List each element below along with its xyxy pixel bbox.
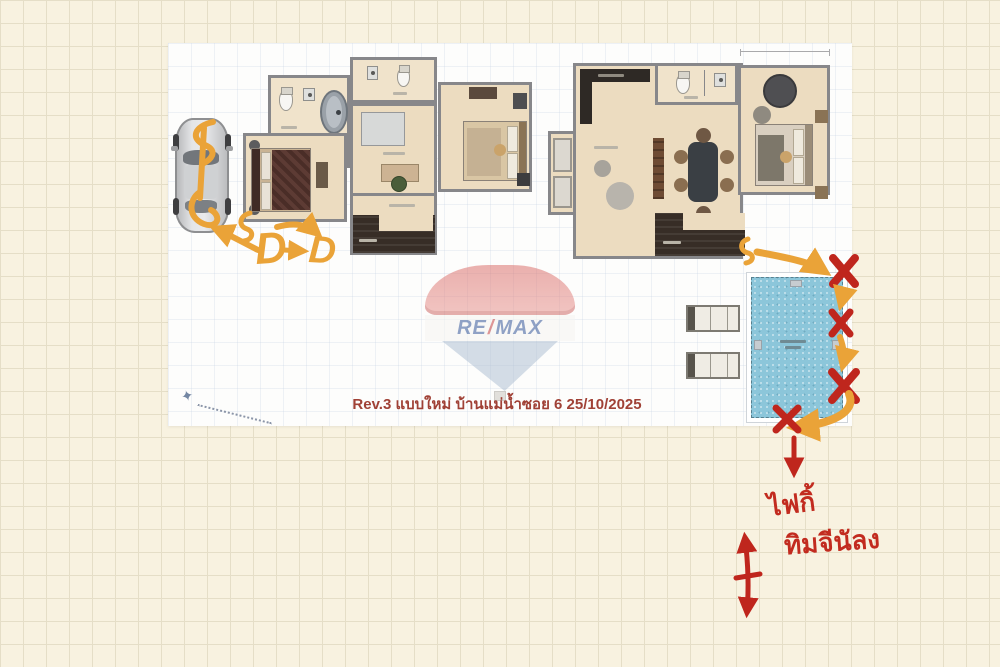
room-label-smudge bbox=[383, 152, 405, 155]
remax-logo-text: RE/MAX bbox=[425, 315, 575, 341]
sun-lounger-icon bbox=[686, 352, 740, 379]
room-label-smudge bbox=[393, 92, 407, 95]
pool-step-icon bbox=[790, 280, 802, 287]
toilet-icon bbox=[279, 90, 293, 111]
dining-chair-icon bbox=[720, 178, 734, 192]
dashed-path-line bbox=[198, 404, 272, 424]
right-plan-deck bbox=[655, 213, 745, 256]
car-roof bbox=[184, 165, 218, 199]
deck-label-smudge bbox=[663, 241, 681, 244]
toilet-icon bbox=[397, 68, 410, 87]
kitchen-counter-icon bbox=[580, 82, 592, 124]
balloon-cone bbox=[442, 341, 558, 391]
rug-icon bbox=[753, 106, 771, 124]
red-tick bbox=[736, 574, 760, 578]
remax-balloon-watermark: RE/MAX bbox=[424, 265, 576, 397]
dimension-line bbox=[740, 51, 830, 52]
north-star-icon: ✦ bbox=[179, 386, 196, 407]
divider-shelf-icon bbox=[653, 138, 664, 199]
sofa-icon bbox=[553, 176, 572, 208]
pool-ladder-icon bbox=[832, 340, 840, 350]
left-plan-deck bbox=[353, 215, 435, 253]
left-plan-bathroom-2 bbox=[350, 57, 437, 103]
nightstand-icon bbox=[815, 110, 828, 123]
counter-label-smudge bbox=[598, 74, 624, 77]
bed-icon bbox=[463, 121, 527, 181]
shower-icon bbox=[303, 88, 315, 101]
dining-chair-icon bbox=[674, 178, 688, 192]
right-plan-bedroom bbox=[738, 65, 830, 195]
floorplan-image: RE/MAX Rev.3 แบบใหม่ บ้านแม่น้ำซอย 6 25/… bbox=[168, 43, 852, 426]
annotated-floorplan-note: RE/MAX Rev.3 แบบใหม่ บ้านแม่น้ำซอย 6 25/… bbox=[0, 0, 1000, 667]
red-double-arrow bbox=[745, 538, 748, 612]
room-label-smudge bbox=[389, 204, 415, 207]
handwritten-note-line1: ไฟกิ้ bbox=[766, 481, 818, 527]
rear-window bbox=[185, 200, 217, 213]
bed-icon bbox=[755, 124, 813, 186]
right-plan-sofa-nook bbox=[548, 131, 576, 215]
room-label-smudge bbox=[594, 146, 618, 149]
rug-icon bbox=[606, 182, 634, 210]
sofa-icon bbox=[553, 138, 572, 172]
car-top-view bbox=[175, 118, 229, 233]
dining-chair-icon bbox=[674, 150, 688, 164]
windshield bbox=[183, 150, 219, 165]
dresser-icon bbox=[316, 162, 328, 188]
bathtub-icon bbox=[320, 90, 348, 134]
right-plan-bathroom bbox=[655, 63, 738, 105]
shower-icon bbox=[367, 66, 378, 80]
round-chair-icon bbox=[763, 74, 797, 108]
tv-cabinet-icon bbox=[513, 93, 527, 109]
left-plan-master-bedroom bbox=[243, 133, 347, 222]
toilet-icon bbox=[676, 74, 690, 94]
room-label-smudge bbox=[281, 126, 297, 129]
dining-chair-icon bbox=[696, 128, 711, 143]
deck-label-smudge bbox=[359, 239, 377, 242]
partition-line bbox=[704, 70, 705, 96]
pool-label-smudge bbox=[785, 346, 801, 349]
swimming-pool bbox=[746, 272, 848, 423]
wardrobe-icon bbox=[469, 87, 497, 99]
bed-icon bbox=[251, 148, 311, 212]
dining-table-icon bbox=[688, 142, 718, 202]
nightstand-icon bbox=[517, 173, 530, 186]
nightstand-icon bbox=[815, 186, 828, 199]
pool-label-smudge bbox=[780, 340, 806, 343]
left-plan-office-room bbox=[350, 103, 437, 197]
dining-chair-icon bbox=[720, 150, 734, 164]
pouf-icon bbox=[594, 160, 611, 177]
pool-ladder-icon bbox=[754, 340, 762, 350]
chair-icon bbox=[391, 176, 407, 192]
daybed-icon bbox=[361, 112, 405, 146]
handwritten-note-line2: ทิมจีนัลง bbox=[783, 519, 882, 567]
pool-water bbox=[751, 277, 843, 418]
left-plan-bedroom-2 bbox=[438, 82, 532, 192]
shower-icon bbox=[714, 73, 726, 87]
plan-caption: Rev.3 แบบใหม่ บ้านแม่น้ำซอย 6 25/10/2025 bbox=[322, 392, 672, 416]
pool-step-icon bbox=[790, 408, 802, 415]
room-label-smudge bbox=[684, 96, 698, 99]
sun-lounger-icon bbox=[686, 305, 740, 332]
balloon-canopy bbox=[425, 265, 575, 315]
